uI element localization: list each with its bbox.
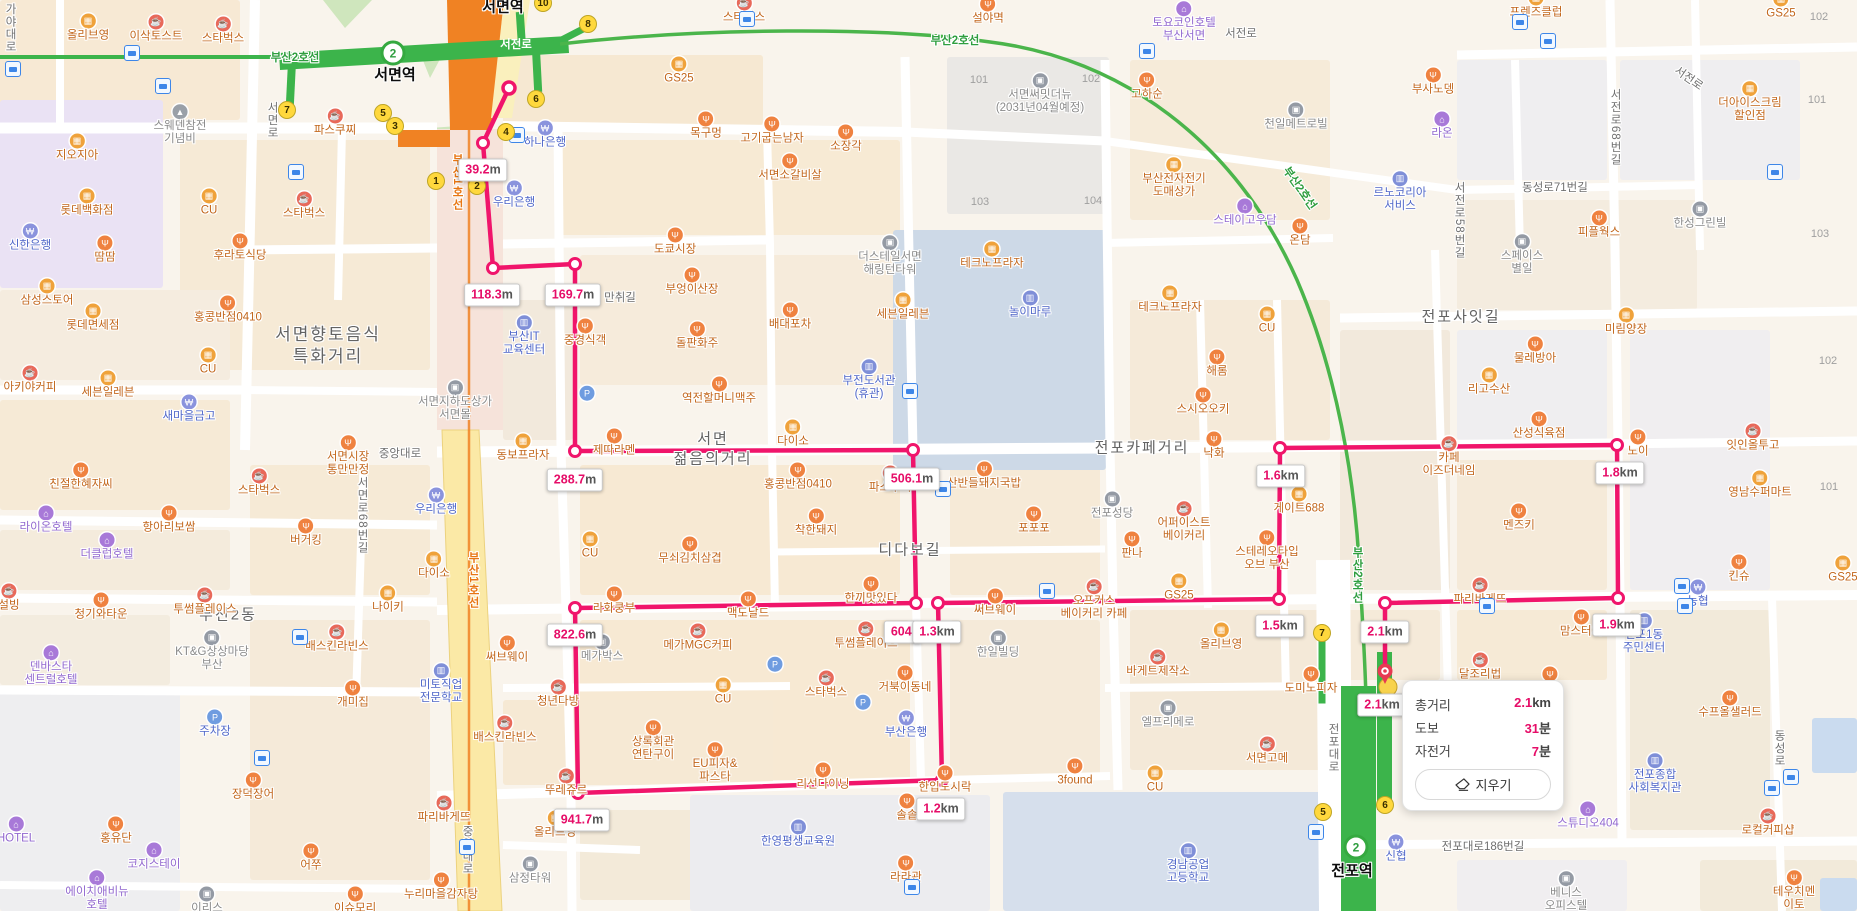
poi-label: 지오지아 xyxy=(56,149,98,162)
poi-p-icon: P xyxy=(208,709,223,724)
map-poi: ▣엘프리메로 xyxy=(1142,700,1195,729)
poi-f-icon: Ψ xyxy=(1292,218,1307,233)
route-distance-label: 506.1m xyxy=(884,468,940,491)
poi-label: 낙화 xyxy=(1203,447,1224,460)
bus-stop-icon[interactable] xyxy=(1039,583,1055,599)
bus-stop-icon[interactable] xyxy=(1540,33,1556,49)
poi-label: 올리브영 xyxy=(67,29,109,42)
poi-label: 중경식객 xyxy=(564,334,606,347)
poi-label: 스페이스별일 xyxy=(1501,250,1543,275)
map-poi: ☕설빙 xyxy=(0,583,20,612)
poi-label: 거북이동네 xyxy=(879,681,932,694)
poi-c-icon: ☕ xyxy=(497,715,512,730)
poi-b-icon: ₩ xyxy=(506,180,521,195)
poi-s-icon: ▦ xyxy=(1166,157,1181,172)
poi-s-icon: ▦ xyxy=(583,531,598,546)
road-name-label: 서전로58번길 xyxy=(1451,181,1467,258)
road-name-label: 서전로 xyxy=(500,36,532,52)
map-poi: ▦다이소 xyxy=(777,419,809,448)
poi-label: 한영평생교육원 xyxy=(761,835,835,848)
poi-f-icon: Ψ xyxy=(685,267,700,282)
poi-label: 부산은행 xyxy=(885,726,927,739)
poi-label: GS25 xyxy=(1828,571,1857,584)
bus-stop-icon[interactable] xyxy=(1783,769,1799,785)
map-poi: ▦더아이스크림할인점 xyxy=(1718,81,1781,122)
map-poi: Ψ제따라멘 xyxy=(593,428,635,457)
poi-label: 전포성당 xyxy=(1091,507,1133,519)
poi-f-icon: Ψ xyxy=(1532,411,1547,426)
poi-label: 서면시장통만만정 xyxy=(327,451,369,476)
district-label: 전포사잇길 xyxy=(1421,307,1500,327)
map-poi: Ψ설야멱 xyxy=(972,0,1004,25)
route-distance-label: 2.1km xyxy=(1357,694,1406,717)
poi-g-icon: ▣ xyxy=(522,856,537,871)
map-poi: ▦CU xyxy=(582,531,599,560)
poi-s-icon: ▦ xyxy=(80,188,95,203)
poi-p-icon: P xyxy=(856,695,871,710)
poi-label: 로컬커피샵 xyxy=(1742,824,1795,837)
poi-label: 잇인올투고 xyxy=(1727,439,1780,452)
map-poi: ▦CU xyxy=(200,347,217,376)
total-distance-value: 2.1 xyxy=(1514,695,1532,710)
map-poi: ₩부산은행 xyxy=(885,710,927,739)
poi-f-icon: Ψ xyxy=(987,588,1002,603)
poi-label: 부사노뎅 xyxy=(1412,83,1454,96)
poi-label: 다이소 xyxy=(777,435,809,448)
poi-label: 개미집 xyxy=(337,696,369,709)
poi-s-icon: ▦ xyxy=(1618,307,1633,322)
poi-label: 이슈모리 xyxy=(334,902,376,911)
bus-stop-icon[interactable] xyxy=(459,839,475,855)
poi-label: 메가박스 xyxy=(581,650,623,663)
poi-s-icon: ▦ xyxy=(1835,555,1850,570)
poi-s-icon: ▦ xyxy=(896,292,911,307)
poi-label: EU피자&파스타 xyxy=(693,758,738,783)
map-poi: ₩하나은행 xyxy=(524,120,566,149)
poi-label: 해롬 xyxy=(1206,365,1227,378)
poi-label: 역전할머니맥주 xyxy=(682,392,756,405)
map-poi: ▦다이소 xyxy=(418,551,450,580)
total-distance-unit: km xyxy=(1532,695,1551,710)
district-label: 서면젊음의거리 xyxy=(673,430,752,469)
route-summary-panel: 총거리 2.1km 도보 31분 자전거 7분 지우기 xyxy=(1402,680,1564,811)
road-name-label: 만취길 xyxy=(604,289,636,305)
poi-g-icon: ▣ xyxy=(448,380,463,395)
poi-b-icon: ₩ xyxy=(1388,834,1403,849)
map-poi: Ψ노이 xyxy=(1627,429,1648,458)
poi-b-icon: ₩ xyxy=(537,120,552,135)
poi-g-icon: ▣ xyxy=(1104,491,1119,506)
map-poi: Ψ배대포차 xyxy=(769,302,811,331)
map-poi: Ψ누리마을감자탕 xyxy=(404,872,478,901)
poi-i-icon: ▥ xyxy=(1180,843,1195,858)
poi-label: 3found xyxy=(1057,774,1092,787)
poi-f-icon: Ψ xyxy=(1786,870,1801,885)
poi-h-icon: ⌂ xyxy=(39,505,54,520)
map-poi: ⌂토요코인호텔부산서면 xyxy=(1152,1,1215,42)
poi-g-icon: ▣ xyxy=(1288,102,1303,117)
map-poi: ☕파스쿠찌 xyxy=(314,108,356,137)
poi-g-icon: ▣ xyxy=(1514,234,1529,249)
map-poi: ▦게이트688 xyxy=(1274,486,1325,514)
subway-exit-badge[interactable]: 10 xyxy=(534,0,552,12)
map-poi: ⌂덴바스타센트럴호텔 xyxy=(25,645,78,686)
map-poi: ▦GS25 xyxy=(1828,555,1857,584)
poi-label: 투썸플레이스 xyxy=(173,603,236,616)
district-label: 서면향토음식특화거리 xyxy=(275,324,381,368)
map-poi: ▣이리스 xyxy=(191,886,223,911)
subway-line2-badge[interactable]: 2 xyxy=(381,41,406,66)
poi-label: 목구멍 xyxy=(690,127,722,140)
poi-h-icon: ⌂ xyxy=(44,645,59,660)
map-poi: ▦미림양장 xyxy=(1605,307,1647,336)
map-poi: Ψ물레방아 xyxy=(1514,336,1556,365)
map-poi: Ψ무쇠김치삼겹 xyxy=(658,536,721,565)
poi-label: 써브웨이 xyxy=(486,651,528,664)
poi-label: 상록회관연탄구이 xyxy=(632,736,674,761)
poi-s-icon: ▦ xyxy=(381,585,396,600)
poi-h-icon: ⌂ xyxy=(1237,198,1252,213)
poi-s-icon: ▦ xyxy=(86,303,101,318)
poi-c-icon: ☕ xyxy=(1761,808,1776,823)
poi-s-icon: ▦ xyxy=(80,13,95,28)
subway-exit-badge[interactable]: 6 xyxy=(1376,796,1394,814)
poi-label: 고하순 xyxy=(1131,88,1163,101)
poi-label: 메가MGC커피 xyxy=(663,639,732,652)
poi-label: 바게트제작소 xyxy=(1126,665,1189,678)
poi-label: 게이트688 xyxy=(1274,502,1325,514)
poi-label: 우리은행 xyxy=(493,196,535,209)
poi-label: KT&G상상마당부산 xyxy=(175,646,249,671)
poi-f-icon: Ψ xyxy=(340,435,355,450)
block-number: 103 xyxy=(971,196,989,208)
poi-label: 세븐일레븐 xyxy=(877,308,930,321)
map-poi: ☕뚜레쥬르 xyxy=(545,768,587,797)
poi-label: 코지스테이 xyxy=(128,858,181,871)
subway-exit-badge[interactable]: 4 xyxy=(497,123,515,141)
poi-c-icon: ☕ xyxy=(1473,577,1488,592)
map-poi: ☕아키야커피 xyxy=(4,365,57,394)
poi-f-icon: Ψ xyxy=(1425,67,1440,82)
poi-f-icon: Ψ xyxy=(782,153,797,168)
map-poi: ☕카페이즈더네임 xyxy=(1423,436,1476,477)
poi-label: CU xyxy=(201,204,218,217)
subway-exit-badge[interactable]: 7 xyxy=(1313,624,1331,642)
poi-f-icon: Ψ xyxy=(1206,431,1221,446)
poi-label: 제따라멘 xyxy=(593,444,635,457)
map-canvas[interactable]: ▦올리브영☕이삭토스트☕스타벅스▦지오지아▦롯데백화점₩신한은행Ψ땀땀▦삼성스토… xyxy=(0,0,1857,911)
poi-label: 맥도날드 xyxy=(727,607,769,620)
total-distance-label: 총거리 xyxy=(1415,695,1451,714)
map-poi: ▦영남수퍼마트 xyxy=(1728,470,1791,499)
poi-label: 항아리보쌈 xyxy=(143,521,196,534)
poi-g-icon: ▣ xyxy=(990,630,1005,645)
poi-label: 이리스 xyxy=(191,902,223,911)
poi-label: 소장각 xyxy=(830,140,862,153)
poi-s-icon: ▦ xyxy=(671,56,686,71)
poi-f-icon: Ψ xyxy=(899,793,914,808)
poi-label: 버거킹 xyxy=(290,534,322,547)
road-name-label: 전포대로 xyxy=(1325,723,1341,773)
map-poi: ▦지오지아 xyxy=(56,133,98,162)
poi-label: 부전도서관(휴관) xyxy=(843,375,896,400)
poi-label: 라이온호텔 xyxy=(20,521,73,534)
poi-label: 경남공업고등학교 xyxy=(1167,859,1209,884)
poi-f-icon: Ψ xyxy=(712,376,727,391)
subway-line-label: 부산2호선 xyxy=(931,32,980,48)
poi-f-icon: Ψ xyxy=(699,111,714,126)
poi-b-icon: ₩ xyxy=(22,223,37,238)
bike-time-value: 7 xyxy=(1532,744,1539,759)
map-poi: ▥놀이마루 xyxy=(1009,290,1051,319)
map-poi: ☕투썸플레이스 xyxy=(173,587,236,616)
poi-label: 미림양장 xyxy=(1605,323,1647,336)
poi-label: 포포포 xyxy=(1018,522,1050,535)
bus-stop-icon[interactable] xyxy=(155,78,171,94)
poi-label: 올리브영 xyxy=(1200,638,1242,651)
map-poi: ▣한성그린빌 xyxy=(1674,201,1727,230)
poi-c-icon: ☕ xyxy=(1087,579,1102,594)
subway-line2-badge[interactable]: 2 xyxy=(1344,835,1369,860)
bus-stop-icon[interactable] xyxy=(124,45,140,61)
poi-s-icon: ▦ xyxy=(1260,306,1275,321)
map-poi: Ψ킨슈 xyxy=(1728,554,1749,583)
poi-label: CU xyxy=(1147,781,1164,794)
subway-exit-badge[interactable]: 8 xyxy=(579,15,597,33)
poi-label: 베니스오피스텔 xyxy=(1545,887,1587,911)
map-poi: Ψ착한돼지 xyxy=(795,508,837,536)
bus-stop-icon[interactable] xyxy=(5,61,21,77)
poi-f-icon: Ψ xyxy=(682,536,697,551)
map-poi: ▥전포종합사회복지관 xyxy=(1629,753,1682,794)
road-name-label: 서전로 xyxy=(1671,62,1706,93)
map-poi: ☕배스킨라빈스 xyxy=(473,715,536,744)
poi-f-icon: Ψ xyxy=(1027,506,1042,521)
poi-c-icon: ☕ xyxy=(1150,649,1165,664)
poi-s-icon: ▦ xyxy=(516,433,531,448)
map-poi: Ψ라화쿵부 xyxy=(593,586,635,615)
bus-stop-icon[interactable] xyxy=(1764,780,1780,796)
bus-stop-icon[interactable] xyxy=(1512,14,1528,30)
poi-f-icon: Ψ xyxy=(839,124,854,139)
subway-exit-badge[interactable]: 6 xyxy=(527,90,545,108)
bus-stop-icon[interactable] xyxy=(1139,43,1155,59)
bus-stop-icon[interactable] xyxy=(1308,824,1324,840)
map-poi: Ψ해롬 xyxy=(1206,349,1227,378)
poi-label: 서면지하도상가서면몰 xyxy=(418,396,492,421)
map-poi: ☕배스킨라빈스 xyxy=(305,624,368,653)
poi-f-icon: Ψ xyxy=(791,462,806,477)
map-poi: ▦부산전자전기도매상가 xyxy=(1142,157,1205,198)
poi-label: 청기와타운 xyxy=(75,608,128,621)
subway-exit-badge[interactable]: 3 xyxy=(386,117,404,135)
poi-f-icon: Ψ xyxy=(1527,336,1542,351)
map-poi: Ψ상록회관연탄구이 xyxy=(632,720,674,761)
map-poi: ☕어퍼이스트베이커리 xyxy=(1158,501,1211,542)
poi-label: 오프커스베이커리 카페 xyxy=(1061,595,1128,620)
route-distance-label: 39.2m xyxy=(458,159,507,182)
poi-f-icon: Ψ xyxy=(221,295,236,310)
poi-f-icon: Ψ xyxy=(1124,531,1139,546)
walk-time-value: 31 xyxy=(1525,721,1539,736)
poi-c-icon: ☕ xyxy=(327,108,342,123)
map-poi: ▦리고수산 xyxy=(1468,367,1510,396)
map-poi: Ψ산성식육점 xyxy=(1513,411,1566,440)
map-poi: ▣삼정타워 xyxy=(509,856,551,885)
map-poi: ▦CU xyxy=(1259,306,1276,335)
poi-label: 서면소갈비살 xyxy=(758,169,821,182)
poi-p-icon: P xyxy=(768,657,783,672)
map-poi: ☕스타벅스 xyxy=(238,468,280,497)
poi-label: 누리마을감자탕 xyxy=(404,888,478,901)
bus-stop-icon[interactable] xyxy=(739,11,755,27)
map-poi: Ψ스테레오타입오브 부산 xyxy=(1235,530,1298,571)
bus-stop-icon[interactable] xyxy=(288,164,304,180)
poi-label: 설빙 xyxy=(0,599,20,612)
bus-stop-icon[interactable] xyxy=(904,879,920,895)
map-poi: ▣베니스오피스텔 xyxy=(1545,871,1587,911)
map-poi: Ψ목구멍 xyxy=(690,111,722,140)
map-poi: Ψ항아리보쌈 xyxy=(143,505,196,533)
poi-label: 도미노피자 xyxy=(1285,682,1338,695)
map-poi: ΨEU피자&파스타 xyxy=(693,742,738,783)
road-name-label: 동성로 xyxy=(1771,729,1787,767)
subway-exit-badge[interactable]: 1 xyxy=(427,172,445,190)
map-poi: ▲스웨덴참전기념비 xyxy=(154,104,207,145)
map-poi: Ψ서면시장통만만정 xyxy=(327,435,369,476)
poi-f-icon: Ψ xyxy=(162,505,177,520)
map-poi: ☕로컬커피샵 xyxy=(1742,808,1795,837)
map-poi: ▣서면써밋더뉴(2031년04월예정) xyxy=(996,73,1084,114)
poi-label: 동보프라자 xyxy=(497,449,550,462)
map-poi: Ψ소장각 xyxy=(830,124,862,153)
poi-label: 라화쿵부 xyxy=(593,602,635,615)
map-poi: ▥르노코리아서비스 xyxy=(1374,171,1427,212)
map-poi: Ψ서면소갈비살 xyxy=(758,153,821,182)
bus-stop-icon[interactable] xyxy=(1677,598,1693,614)
block-number: 102 xyxy=(1082,73,1100,85)
map-poi: ▦동보프라자 xyxy=(497,433,550,462)
bus-stop-icon[interactable] xyxy=(254,750,270,766)
poi-label: 테크노프라자 xyxy=(1138,301,1201,314)
poi-label: CU xyxy=(715,693,732,706)
map-poi: Ψ한끼맛있다 xyxy=(845,576,898,605)
poi-label: 천일메트로빌 xyxy=(1264,118,1327,131)
station-name-label: 전포역 xyxy=(1331,860,1372,881)
bus-stop-icon[interactable] xyxy=(1767,164,1783,180)
poi-label: 산성식육점 xyxy=(1513,427,1566,440)
clear-route-label: 지우기 xyxy=(1476,775,1512,794)
map-poi: Ψ한입도시락 xyxy=(919,765,972,794)
poi-c-icon: ☕ xyxy=(1259,736,1274,751)
map-poi: Ψ온담 xyxy=(1289,218,1310,247)
poi-f-icon: Ψ xyxy=(667,227,682,242)
subway-exit-badge[interactable]: 7 xyxy=(278,101,296,119)
poi-s-icon: ▦ xyxy=(1752,470,1767,485)
poi-g-icon: ▣ xyxy=(1558,871,1573,886)
map-poi: ▦세븐일레븐 xyxy=(82,370,135,399)
map-poi: Ψ피플웍스 xyxy=(1578,210,1620,239)
map-poi: ▣스페이스별일 xyxy=(1501,234,1543,275)
bus-stop-icon[interactable] xyxy=(1479,598,1495,614)
poi-s-icon: ▦ xyxy=(202,188,217,203)
poi-label: 테크노프라자 xyxy=(960,257,1023,270)
poi-label: 주차장 xyxy=(199,725,231,738)
map-poi: ⌂코지스테이 xyxy=(128,842,181,871)
map-poi: Ψ낙화 xyxy=(1203,431,1224,460)
poi-b-icon: ₩ xyxy=(428,487,443,502)
poi-label: 스타벅스 xyxy=(283,207,325,220)
poi-f-icon: Ψ xyxy=(1140,72,1155,87)
route-distance-label: 118.3m xyxy=(464,284,520,307)
bus-stop-icon[interactable] xyxy=(1674,578,1690,594)
map-poi: ▦테크노프라자 xyxy=(1138,285,1201,314)
poi-p-icon: P xyxy=(580,386,595,401)
poi-g-icon: ▣ xyxy=(200,886,215,901)
bike-time-label: 자전거 xyxy=(1415,741,1451,760)
poi-s-icon: ▦ xyxy=(1213,622,1228,637)
poi-g-icon: ▣ xyxy=(882,235,897,250)
poi-f-icon: Ψ xyxy=(97,235,112,250)
poi-c-icon: ☕ xyxy=(1746,423,1761,438)
map-poi: Ψ맥도날드 xyxy=(727,591,769,620)
poi-label: 더아이스크림할인점 xyxy=(1718,97,1781,122)
poi-s-icon: ▦ xyxy=(1148,765,1163,780)
map-poi: ▣서면지하도상가서면몰 xyxy=(418,380,492,421)
poi-label: 이삭토스트 xyxy=(130,30,183,43)
poi-label: 후라토식당 xyxy=(214,249,267,262)
road-name-label: 전포대로186번길 xyxy=(1442,838,1525,854)
block-number: 101 xyxy=(970,74,988,86)
clear-route-button[interactable]: 지우기 xyxy=(1415,769,1551,800)
total-distance-row: 총거리 2.1km xyxy=(1415,695,1551,714)
poi-g-icon: ▣ xyxy=(204,630,219,645)
poi-s-icon: ▦ xyxy=(1742,81,1757,96)
poi-f-icon: Ψ xyxy=(233,233,248,248)
map-poi: ▦롯데백화점 xyxy=(61,188,114,217)
poi-label: 토요코인호텔부산서면 xyxy=(1152,17,1215,42)
poi-c-icon: ☕ xyxy=(736,0,751,10)
poi-label: 설야멱 xyxy=(972,12,1004,25)
poi-label: 스테레오타입오브 부산 xyxy=(1235,546,1298,571)
poi-s-icon: ▦ xyxy=(1773,0,1788,6)
bike-time-row: 자전거 7분 xyxy=(1415,741,1551,760)
poi-label: 스타벅스 xyxy=(805,686,847,699)
map-poi: ▦올리브영 xyxy=(1200,622,1242,651)
map-labels-layer: ▦올리브영☕이삭토스트☕스타벅스▦지오지아▦롯데백화점₩신한은행Ψ땀땀▦삼성스토… xyxy=(0,0,1857,911)
poi-f-icon: Ψ xyxy=(1068,758,1083,773)
poi-i-icon: ▥ xyxy=(862,359,877,374)
map-poi: ▦나이키 xyxy=(372,585,404,614)
poi-label: 한성그린빌 xyxy=(1674,217,1727,230)
map-poi: Ψ홍콩반점0410 xyxy=(764,462,832,491)
poi-g-icon: ▣ xyxy=(1693,201,1708,216)
map-poi: ⌂라이온호텔 xyxy=(20,505,73,533)
road-name-label: 동성로71번길 xyxy=(1522,179,1588,195)
map-poi: Ψ장덕장어 xyxy=(232,772,274,801)
map-poi: ☕서면고메 xyxy=(1246,736,1288,765)
poi-f-icon: Ψ xyxy=(434,872,449,887)
map-poi: Ψ써브웨이 xyxy=(486,635,528,664)
bus-stop-icon[interactable] xyxy=(292,629,308,645)
poi-f-icon: Ψ xyxy=(109,816,124,831)
map-poi: ☕스타벅스 xyxy=(202,16,244,45)
subway-exit-badge[interactable]: 5 xyxy=(1314,803,1332,821)
map-poi: ☕잇인올투고 xyxy=(1727,423,1780,452)
bus-stop-icon[interactable] xyxy=(902,383,918,399)
poi-h-icon: ⌂ xyxy=(1176,1,1191,16)
route-distance-label: 822.6m xyxy=(547,624,603,647)
